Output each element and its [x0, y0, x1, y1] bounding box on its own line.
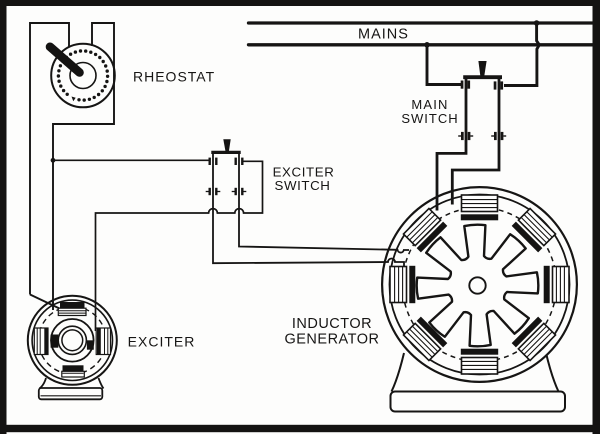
svg-text:INDUCTOR: INDUCTOR — [292, 316, 372, 332]
svg-text:EXCITER: EXCITER — [128, 334, 196, 350]
svg-text:RHEOSTAT: RHEOSTAT — [133, 69, 215, 85]
svg-text:SWITCH: SWITCH — [401, 111, 458, 126]
svg-text:MAINS: MAINS — [358, 27, 409, 43]
svg-text:MAIN: MAIN — [411, 97, 448, 112]
svg-text:GENERATOR: GENERATOR — [284, 332, 379, 348]
svg-text:SWITCH: SWITCH — [274, 178, 330, 193]
